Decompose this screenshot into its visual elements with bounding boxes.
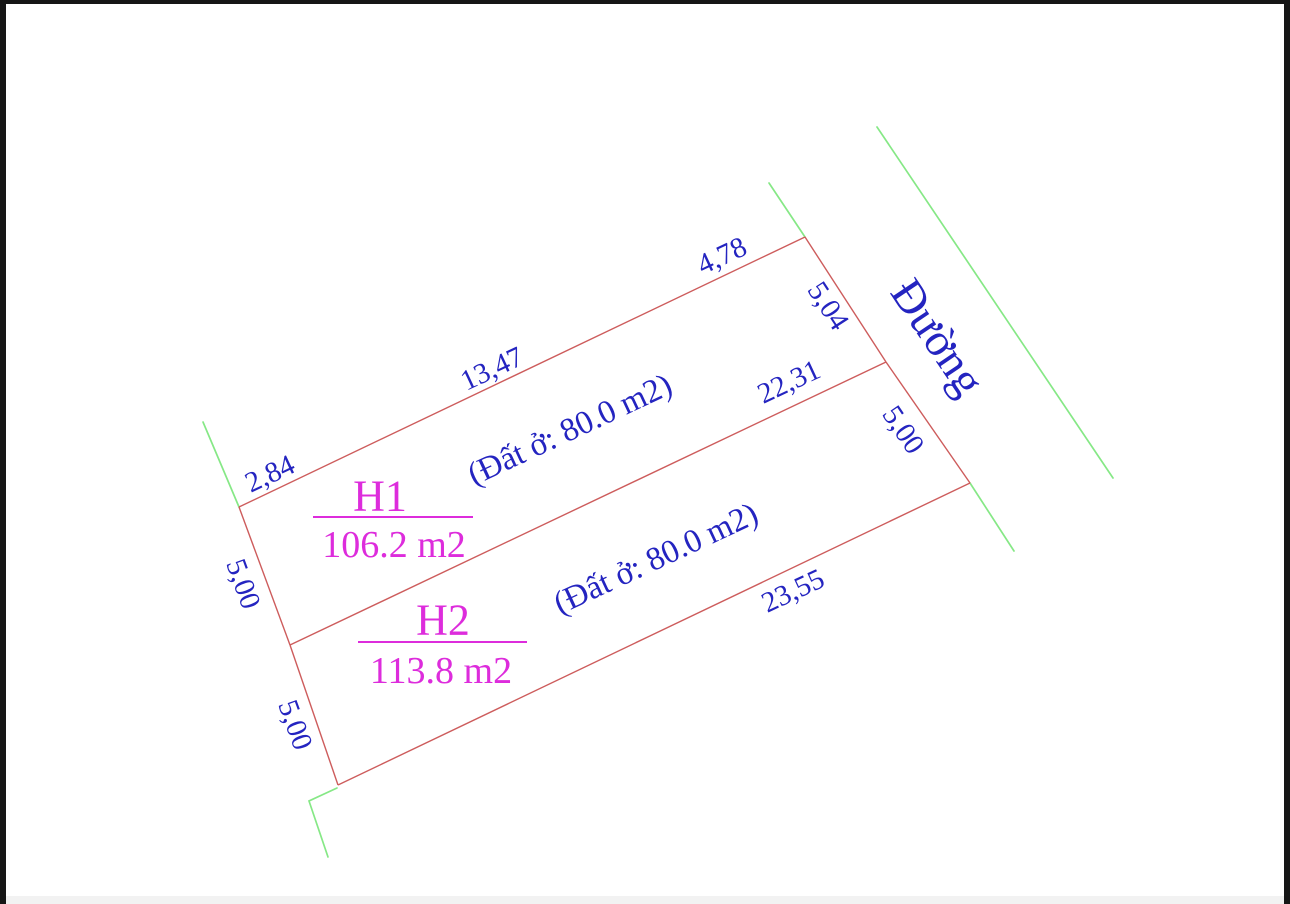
boundary-extension-left-top [203, 422, 239, 507]
dimension-labels: 2,84 13,47 4,78 5,04 22,31 5,00 5,00 5,0… [219, 231, 930, 755]
parcel-h2-land-note: (Đất ở: 80.0 m2) [548, 496, 763, 622]
parcel-h1-labels: H1 106.2 m2 (Đất ở: 80.0 m2) [313, 367, 678, 566]
boundary-corner-mark-bottom [309, 788, 337, 857]
dimension-label-bottom: 23,55 [757, 563, 830, 620]
parcel-h1-area: 106.2 m2 [322, 524, 466, 566]
dimension-label-left-lower: 5,00 [271, 696, 318, 755]
road-lines [203, 127, 1113, 857]
cadastral-drawing: 2,84 13,47 4,78 5,04 22,31 5,00 5,00 5,0… [0, 0, 1290, 904]
parcel-h2-area: 113.8 m2 [370, 650, 512, 692]
parcel-h1-name: H1 [353, 472, 407, 521]
footer-bar [6, 896, 1284, 904]
dimension-label-divider: 22,31 [753, 354, 826, 411]
dimension-label-top-middle: 13,47 [456, 341, 529, 398]
parcel-h2-name: H2 [416, 596, 470, 645]
frame-edge-top [0, 0, 1290, 4]
frame-edge-left [0, 0, 6, 904]
dimension-label-right-upper: 5,04 [801, 276, 856, 336]
dimension-label-top-right: 4,78 [692, 231, 752, 281]
road-near-edge-extension-top [769, 183, 805, 237]
cadastral-plan-screen: 2,84 13,47 4,78 5,04 22,31 5,00 5,00 5,0… [0, 0, 1290, 904]
dimension-label-right-lower: 5,00 [876, 400, 931, 460]
road-name-label: Đường [881, 269, 995, 404]
frame-edge-right [1284, 0, 1290, 904]
parcel-boundaries [239, 237, 970, 785]
parcel-h1-land-note: (Đất ở: 80.0 m2) [462, 367, 677, 493]
road-near-edge-extension-bottom [970, 483, 1014, 551]
